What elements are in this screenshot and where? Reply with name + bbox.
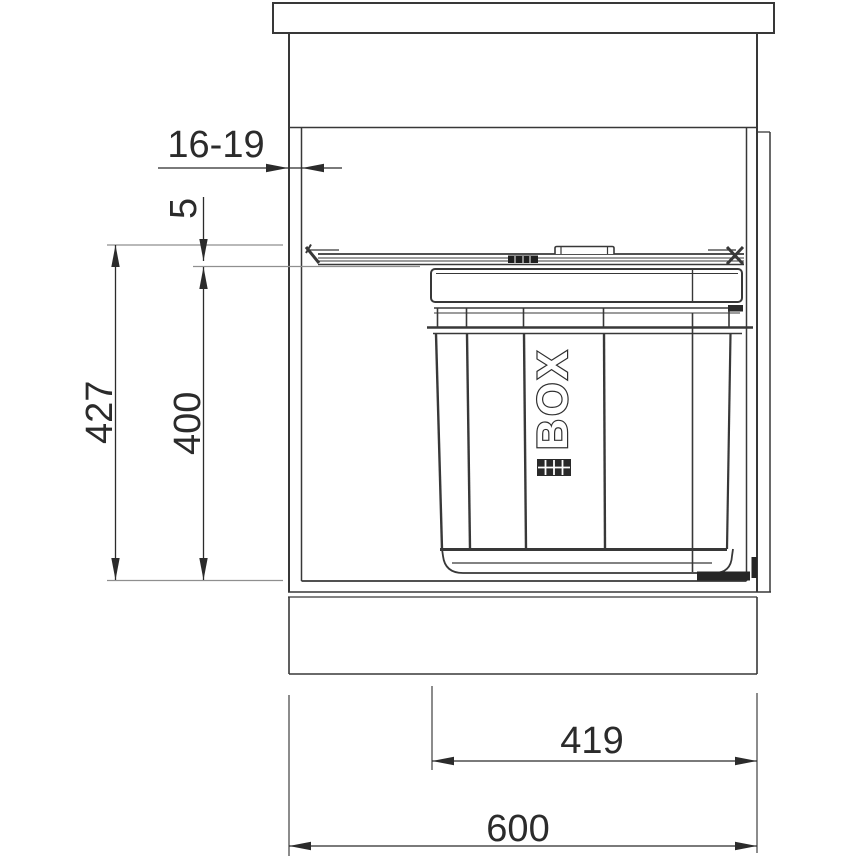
arrow-down-icon [199,239,207,261]
slide-rail [306,245,744,265]
reference-lines [107,245,420,581]
dimension-bin-height: 400 [167,267,209,580]
cabinet-bin-section-drawing: BOX 16-19 5 427 400 [0,0,860,860]
rim-clamp-mark [728,305,743,312]
dim-label-rail-clearance: 5 [163,198,205,219]
dimension-bin-width: 419 [432,686,757,853]
arrow-left-icon [289,842,311,850]
dim-label-panel-thickness: 16-19 [167,124,264,166]
cabinet-carcass [288,33,771,597]
dimension-panel-thickness: 16-19 [158,124,342,172]
rail-mount-tab [555,247,614,255]
dimension-cabinet-width: 600 [289,695,757,856]
countertop-panel [273,3,774,33]
arrow-left-icon [302,164,324,172]
cage-wire-2 [467,334,470,549]
arrow-down-icon [111,558,119,580]
dim-label-cabinet-width: 600 [486,808,549,850]
arrow-left-icon [432,757,454,765]
base-bracket [697,572,750,581]
arrow-right-icon [735,757,757,765]
plinth [289,597,757,674]
arrow-right-icon [735,842,757,850]
dim-label-inner-height: 427 [79,381,121,444]
dimension-inner-height: 427 [79,245,121,580]
technical-drawing-page: BOX 16-19 5 427 400 [0,0,860,860]
cage-wire-1 [436,334,442,549]
dim-label-bin-width: 419 [560,720,623,762]
countertop [273,3,774,33]
cage-wire-right [727,334,731,549]
arrow-down-icon [199,558,207,580]
cage-wire-3 [524,334,526,549]
arrow-up-icon [111,245,119,267]
rear-bracket [752,557,758,578]
dimension-rail-clearance: 5 [163,197,208,261]
cage-wire-4 [604,334,605,549]
arrow-right-icon [266,164,288,172]
dim-label-bin-height: 400 [167,392,209,455]
bucket-bottom [442,549,733,573]
waste-bin: BOX [427,269,757,581]
arrow-up-icon [199,267,207,289]
grid-icon [537,459,571,476]
bin-logo-text: BOX [529,348,577,450]
